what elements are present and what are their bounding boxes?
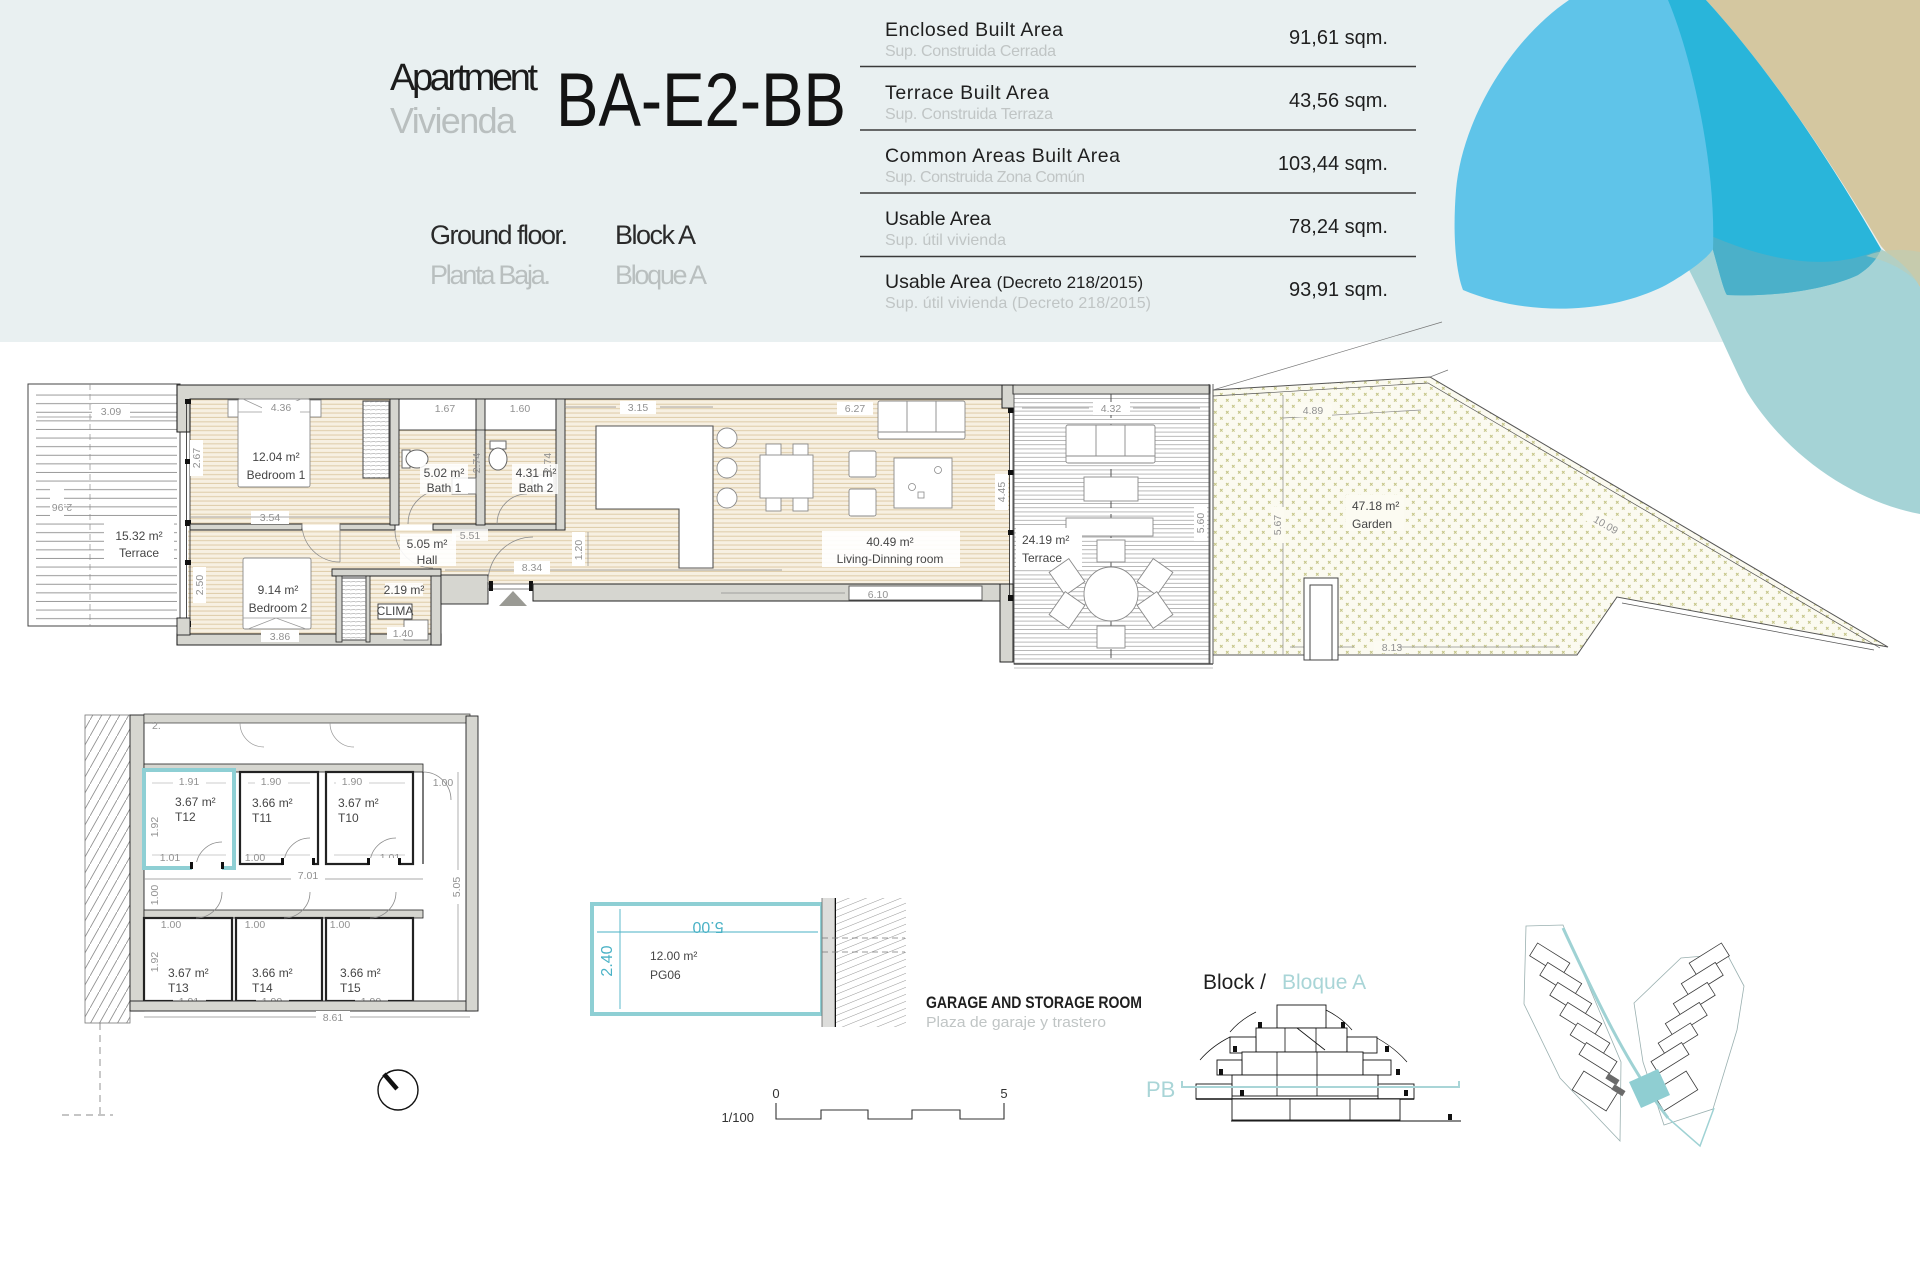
svg-text:1.00: 1.00 [330,919,351,931]
svg-text:93,91 sqm.: 93,91 sqm. [1289,279,1388,301]
svg-text:4.36: 4.36 [271,402,292,414]
svg-text:2.96: 2.96 [52,501,73,513]
svg-text:1.00: 1.00 [433,777,454,789]
svg-text:Enclosed Built Area: Enclosed Built Area [885,19,1063,41]
svg-text:2.74: 2.74 [471,453,483,474]
svg-text:Hall: Hall [417,553,438,567]
svg-text:1.90: 1.90 [342,776,363,788]
svg-text:5.05: 5.05 [451,877,463,898]
svg-text:Sup. Construida Zona Común: Sup. Construida Zona Común [885,169,1085,186]
svg-text:Bedroom 1: Bedroom 1 [247,468,306,482]
svg-text:3.15: 3.15 [628,402,649,414]
svg-text:5.00: 5.00 [692,918,723,935]
svg-text:12.00 m²: 12.00 m² [650,949,697,963]
svg-text:Vivienda: Vivienda [390,100,517,141]
svg-text:1.00: 1.00 [245,919,266,931]
svg-text:5.60: 5.60 [1195,513,1207,534]
svg-text:5.51: 5.51 [460,530,481,542]
svg-text:24.19 m²: 24.19 m² [1022,533,1069,547]
svg-text:Sup. útil vivienda: Sup. útil vivienda [885,232,1006,249]
svg-text:Bath 1: Bath 1 [427,481,462,495]
svg-text:43,56 sqm.: 43,56 sqm. [1289,90,1388,112]
svg-text:47.18 m²: 47.18 m² [1352,499,1399,513]
svg-text:T15: T15 [340,981,361,995]
svg-text:Terrace: Terrace [119,546,159,560]
svg-text:Bloque A: Bloque A [615,260,707,290]
svg-text:3.67 m²: 3.67 m² [338,796,379,810]
svg-text:12.04 m²: 12.04 m² [252,450,299,464]
svg-text:4.32: 4.32 [1101,403,1122,415]
svg-text:1.91: 1.91 [179,776,200,788]
svg-text:8.13: 8.13 [1382,642,1403,654]
svg-text:2.74: 2.74 [542,453,554,474]
svg-text:3.67 m²: 3.67 m² [175,795,216,809]
svg-text:4.45: 4.45 [996,482,1008,503]
svg-text:9.14 m²: 9.14 m² [258,583,299,597]
svg-text:5.05 m²: 5.05 m² [407,537,448,551]
svg-text:1.92: 1.92 [149,952,161,973]
svg-text:T12: T12 [175,810,196,824]
svg-text:Terrace: Terrace [1022,551,1062,565]
svg-text:1.20: 1.20 [573,540,585,561]
svg-text:Bloque A: Bloque A [1282,971,1366,994]
svg-text:7.01: 7.01 [298,870,319,882]
svg-text:5.02 m²: 5.02 m² [424,466,465,480]
svg-text:1.00: 1.00 [161,919,182,931]
svg-text:BA-E2-BB: BA-E2-BB [556,58,846,143]
svg-text:GARAGE AND STORAGE ROOM: GARAGE AND STORAGE ROOM [926,993,1142,1012]
svg-text:3.67 m²: 3.67 m² [168,966,209,980]
svg-text:1.00: 1.00 [149,885,161,906]
svg-text:T14: T14 [252,981,273,995]
svg-text:1.67: 1.67 [435,403,456,415]
svg-text:1.40: 1.40 [393,628,414,640]
svg-text:CLIMA: CLIMA [377,604,414,618]
svg-text:Sup. útil vivienda (Decreto 21: Sup. útil vivienda (Decreto 218/2015) [885,295,1151,312]
svg-text:Terrace Built Area: Terrace Built Area [885,82,1049,104]
svg-text:6.27: 6.27 [845,403,866,415]
svg-text:T11: T11 [252,811,272,825]
svg-text:78,24 sqm.: 78,24 sqm. [1289,216,1388,238]
svg-text:8.61: 8.61 [323,1012,344,1024]
svg-text:Ground floor.: Ground floor. [430,220,568,250]
svg-text:T10: T10 [338,811,359,825]
svg-text:2.19 m²: 2.19 m² [384,583,425,597]
svg-text:PB: PB [1146,1077,1175,1102]
svg-text:3.09: 3.09 [101,406,122,418]
svg-text:Sup. Construida Cerrada: Sup. Construida Cerrada [885,43,1056,60]
svg-text:Usable Area: Usable Area [885,208,991,230]
svg-text:5.67: 5.67 [1272,515,1284,536]
svg-text:1/100: 1/100 [721,1110,754,1125]
svg-text:2.40: 2.40 [599,945,616,976]
svg-text:0: 0 [772,1086,779,1101]
svg-text:Planta Baja.: Planta Baja. [430,260,551,290]
svg-text:T13: T13 [168,981,189,995]
svg-text:Block /: Block / [1203,971,1266,994]
svg-text:Block A: Block A [615,220,696,250]
svg-text:3.66 m²: 3.66 m² [252,796,293,810]
svg-text:5: 5 [1000,1086,1007,1101]
svg-text:Sup. Construida Terraza: Sup. Construida Terraza [885,106,1053,123]
svg-text:2.: 2. [152,720,161,732]
svg-text:4.89: 4.89 [1303,405,1324,417]
svg-text:91,61 sqm.: 91,61 sqm. [1289,27,1388,49]
svg-text:1.01: 1.01 [160,852,181,864]
svg-text:8.34: 8.34 [522,562,543,574]
svg-text:103,44 sqm.: 103,44 sqm. [1278,153,1388,175]
svg-text:1.00: 1.00 [245,852,266,864]
svg-text:3.66 m²: 3.66 m² [340,966,381,980]
svg-text:1.92: 1.92 [149,817,161,838]
svg-text:PG06: PG06 [650,968,681,982]
svg-text:Bath 2: Bath 2 [519,481,554,495]
svg-text:3.66 m²: 3.66 m² [252,966,293,980]
svg-text:2.67: 2.67 [191,448,203,469]
svg-text:1.60: 1.60 [510,403,531,415]
svg-text:1.90: 1.90 [261,776,282,788]
svg-text:6.10: 6.10 [868,589,889,601]
svg-text:Plaza de garaje y trastero: Plaza de garaje y trastero [926,1014,1106,1031]
svg-text:Bedroom 2: Bedroom 2 [249,601,308,615]
svg-text:Living-Dinning room: Living-Dinning room [837,552,944,566]
svg-text:Apartment: Apartment [390,57,538,99]
svg-text:15.32 m²: 15.32 m² [115,529,162,543]
svg-text:3.86: 3.86 [270,631,291,643]
svg-text:Common Areas Built Area: Common Areas Built Area [885,145,1120,167]
svg-text:Garden: Garden [1352,517,1392,531]
svg-text:Usable Area (Decreto 218/2015): Usable Area (Decreto 218/2015) [885,271,1143,293]
svg-text:3.54: 3.54 [260,512,281,524]
svg-text:40.49 m²: 40.49 m² [866,535,913,549]
svg-text:2.50: 2.50 [194,575,206,596]
